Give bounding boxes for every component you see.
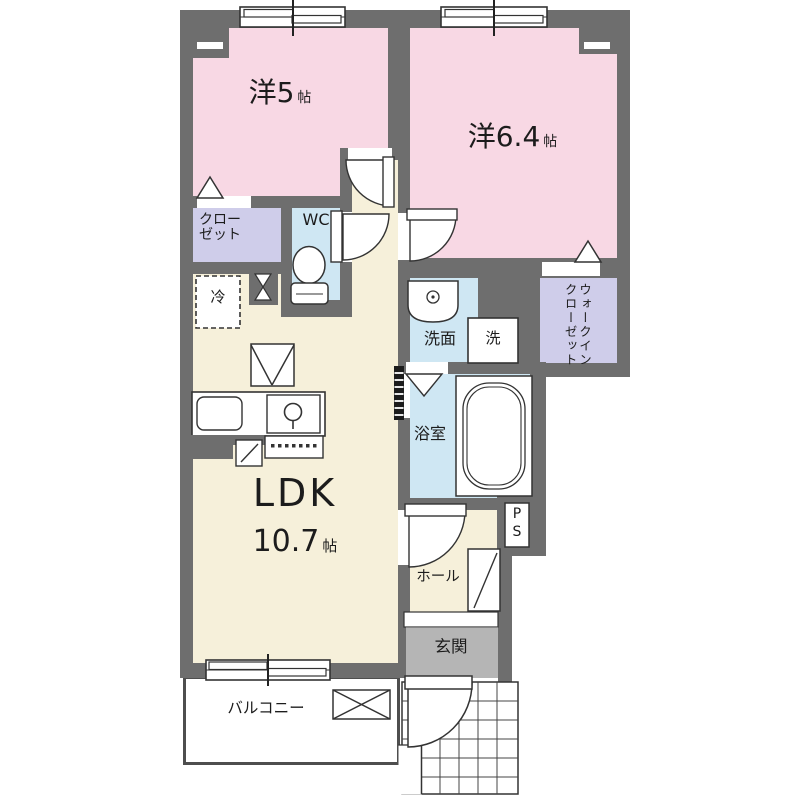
wall-segment xyxy=(478,278,518,318)
room-label-hall: ホール xyxy=(406,570,470,586)
wall-segment xyxy=(398,362,532,374)
wall-segment xyxy=(398,258,617,278)
entrance-step xyxy=(404,612,498,627)
wall-segment xyxy=(398,160,410,213)
room-name: LDK xyxy=(200,473,390,515)
wall-segment xyxy=(388,10,410,160)
room-fill-bedroom-a-lower xyxy=(193,148,340,196)
room-label-balcony: バルコニー xyxy=(198,700,334,717)
wall-segment xyxy=(180,10,193,678)
room-name: 洋5 xyxy=(249,76,295,109)
room-label-ldk: LDK 10.7帖 xyxy=(200,473,390,558)
room-label-washing-machine: 洗 xyxy=(468,330,518,347)
floor-plan: 洋5帖 洋6.4帖 クローゼット WC 冷 洗面 洗 浴室 ウォークインクローゼ… xyxy=(0,0,793,800)
room-label-bedroom-a: 洋5帖 xyxy=(215,78,345,109)
wall-segment xyxy=(518,278,540,365)
wall-segment xyxy=(340,148,400,160)
room-label-refrigerator: 冷 xyxy=(196,289,240,306)
wall-segment xyxy=(281,300,352,317)
room-name: 洋6.4 xyxy=(468,120,541,153)
room-unit: 帖 xyxy=(297,90,311,106)
door-opening xyxy=(398,213,410,260)
room-label-walk-in-closet: ウォークインクローゼット xyxy=(553,283,591,369)
room-label-bathroom: 浴室 xyxy=(404,425,456,443)
wall-segment xyxy=(498,556,512,683)
wall-segment xyxy=(617,10,630,375)
wall-segment xyxy=(281,208,292,300)
room-label-entrance: 玄関 xyxy=(404,638,498,656)
wall-segment xyxy=(579,28,617,54)
room-label-washroom: 洗面 xyxy=(412,330,468,348)
wall-segment xyxy=(180,663,400,678)
wall-segment xyxy=(193,196,340,208)
room-fill-hall xyxy=(410,510,498,612)
wall-segment xyxy=(193,28,229,58)
door-swing-entrance xyxy=(405,676,472,747)
wall-segment xyxy=(398,278,410,368)
door-opening xyxy=(398,510,410,565)
room-label-bedroom-b: 洋6.4帖 xyxy=(425,122,600,153)
room-fill-corridor xyxy=(352,160,398,268)
room-fill-ldk xyxy=(193,268,398,665)
balcony-area xyxy=(183,676,400,765)
room-label-closet: クローゼット xyxy=(199,213,245,244)
wall-segment xyxy=(532,362,546,510)
room-size: 10.7帖 xyxy=(200,525,390,558)
porch-tiles xyxy=(399,682,519,795)
room-unit: 帖 xyxy=(543,134,557,150)
room-size-value: 10.7 xyxy=(253,524,320,559)
wall-segment xyxy=(340,148,352,317)
wall-segment xyxy=(249,268,278,305)
room-label-wc: WC xyxy=(292,211,340,229)
room-label-pipe-space: PS xyxy=(505,506,529,541)
room-unit: 帖 xyxy=(322,537,337,555)
